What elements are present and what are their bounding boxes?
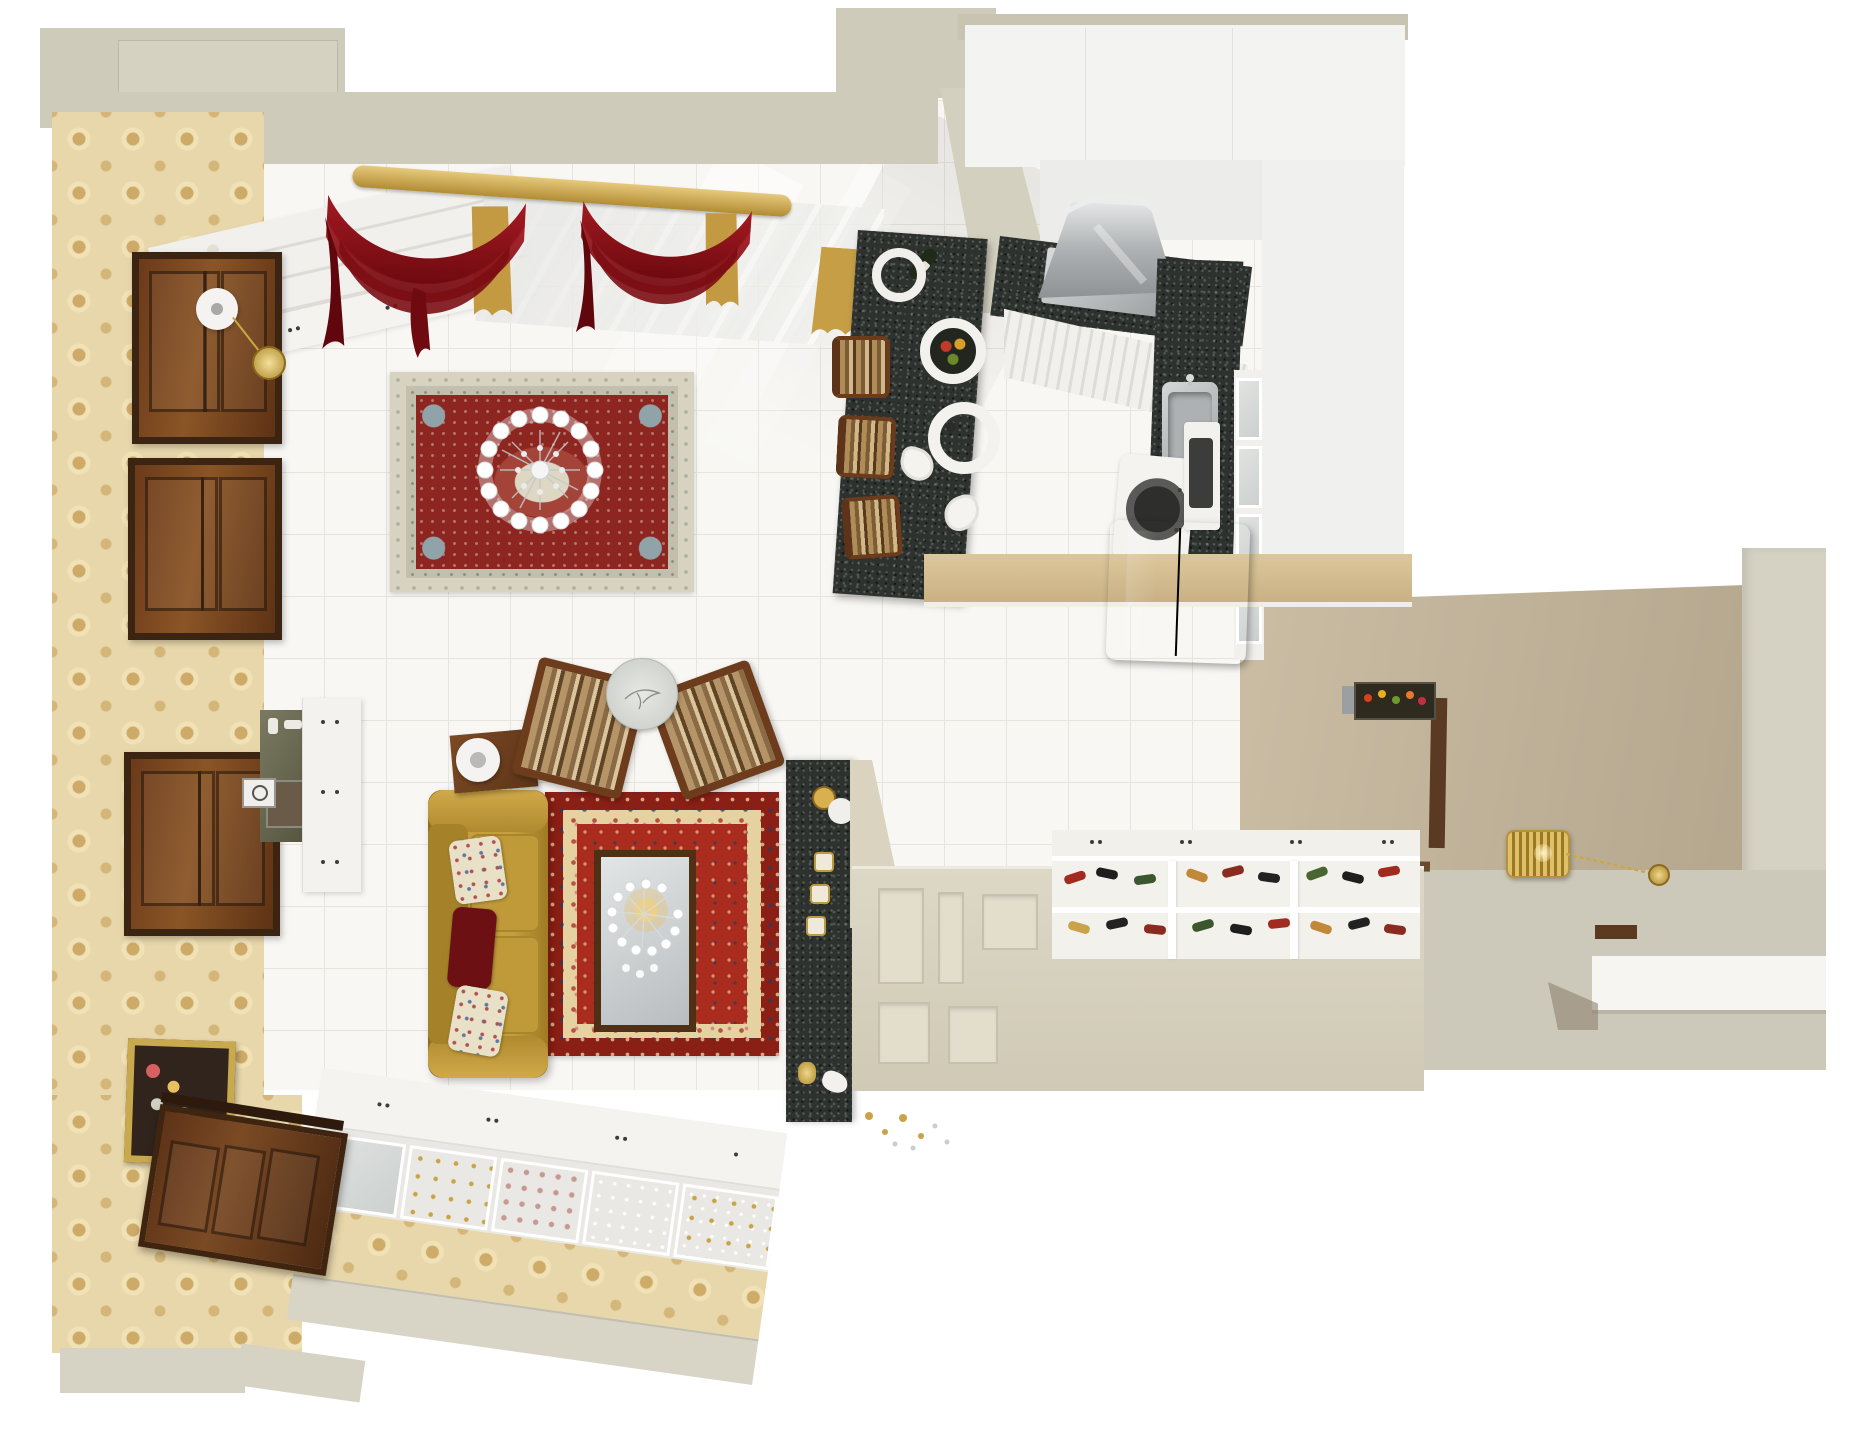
panel-inset — [201, 477, 218, 611]
bar-stool — [835, 415, 896, 480]
panel-inset — [198, 771, 215, 906]
small-clock-face — [252, 785, 268, 801]
sideboard-handle-dot — [335, 790, 339, 794]
microwave-window — [1189, 438, 1213, 508]
shoe — [1185, 868, 1209, 884]
crystal-chandelier — [452, 382, 628, 558]
painting-flower — [146, 1064, 160, 1078]
wall-outer-edge-bottom2 — [236, 1344, 366, 1403]
shoe-cabinet-handle-dot — [1188, 840, 1192, 844]
round-glass-table — [606, 658, 678, 730]
sideboard-handle-dot — [321, 790, 325, 794]
wall-outer-edge-bottom — [60, 1348, 245, 1393]
shoe — [1383, 924, 1406, 936]
shoe-cabinet-handle-dot — [1098, 840, 1102, 844]
cabinet-handle-dot — [377, 1102, 382, 1107]
partition-panel — [938, 892, 964, 984]
kitchen-upper-cabinets — [965, 25, 1405, 167]
cabinet-handle-dot — [494, 1119, 499, 1124]
fruit-bowl — [920, 318, 986, 384]
shoe — [1133, 874, 1156, 886]
glass-door — [673, 1183, 778, 1270]
refrigerator — [1106, 520, 1251, 665]
partition-panel — [948, 1006, 998, 1064]
kitchen-cabinet-seam — [1085, 28, 1086, 164]
bar-stool — [832, 336, 890, 398]
shoe-cabinet-handle-dot — [1180, 840, 1184, 844]
partition-panel — [982, 894, 1038, 950]
cabinet-handle-dot — [615, 1135, 620, 1140]
shoe — [1377, 865, 1400, 878]
shoe — [1063, 870, 1087, 885]
shoe-cabinet-top — [1052, 830, 1420, 856]
cabinet-handle-dot — [288, 328, 293, 333]
flower-picture-frame — [1354, 682, 1436, 720]
fridge-highlight — [1124, 530, 1158, 651]
glass-pane — [1236, 446, 1262, 508]
clock-center — [211, 303, 223, 315]
shoe — [1347, 916, 1371, 930]
microwave — [1184, 422, 1220, 530]
sideboard-handle-dot — [335, 720, 339, 724]
lantern-glow — [1534, 844, 1552, 862]
etched-branch — [607, 659, 677, 729]
wall-wood-panel — [128, 458, 282, 640]
shoe — [1221, 864, 1245, 878]
console-pull — [268, 718, 278, 734]
shoe-cabinet-handle-dot — [1290, 840, 1294, 844]
gold-vase — [798, 1062, 816, 1084]
shoe — [1305, 866, 1329, 882]
pendulum-bob — [252, 346, 286, 380]
lantern-chain — [1566, 846, 1658, 880]
door-panel — [257, 1148, 321, 1247]
sideboard-handle-dot — [321, 860, 325, 864]
partition-panel — [878, 888, 924, 984]
entry-bench-shelf — [1592, 956, 1826, 1010]
white-sideboard — [302, 698, 361, 892]
cup-on-plate — [946, 422, 956, 432]
glass-door — [491, 1158, 588, 1244]
gold-candlestick — [806, 916, 826, 936]
console-pull — [284, 720, 302, 729]
sideboard-handle-dot — [321, 720, 325, 724]
panel-inset — [145, 477, 204, 611]
entry-threshold-strip — [1429, 698, 1448, 848]
south-wall-group — [287, 1068, 787, 1383]
pillow-burgundy — [447, 906, 498, 990]
cabinet-handle-dot — [385, 1103, 390, 1108]
entry-door — [138, 1104, 348, 1276]
shoe-divider-horizontal — [1052, 907, 1420, 913]
shoe — [1067, 920, 1091, 935]
shoe — [1095, 867, 1118, 880]
flower-frame-silver-edge — [1342, 686, 1354, 714]
lantern-ceiling-rose — [1648, 864, 1670, 886]
shoe — [1341, 870, 1365, 884]
pendant-lantern — [1506, 830, 1570, 878]
shoe-cabinet-handle-dot — [1298, 840, 1302, 844]
small-clock — [242, 778, 276, 808]
flower-dot — [1418, 697, 1426, 705]
flower-dot — [1406, 691, 1414, 699]
flower-dot — [1364, 694, 1372, 702]
partition-panel — [878, 1002, 930, 1064]
shoe — [1229, 923, 1252, 936]
cabinet-handle-dot — [734, 1152, 739, 1157]
door-panel — [157, 1140, 220, 1233]
shoe — [1309, 920, 1333, 935]
apartment-render — [0, 0, 1864, 1440]
crystal-chandelier-small — [596, 852, 692, 1002]
glass-door — [400, 1145, 497, 1231]
glass-pane — [1236, 378, 1262, 440]
painting-flower — [167, 1081, 179, 1093]
cabinet-handle-dot — [623, 1137, 628, 1142]
bar-stool — [841, 494, 903, 560]
shoe-cabinet-handle-dot — [1390, 840, 1394, 844]
flower-dot — [1392, 696, 1400, 704]
shoe-cabinet-handle-dot — [1382, 840, 1386, 844]
kitchen-cabinet-seam — [1232, 28, 1233, 164]
plate-ring — [872, 248, 926, 302]
lamp-center — [470, 752, 486, 768]
curtain-swag-left — [314, 187, 533, 368]
shoe — [1144, 924, 1167, 935]
cabinet-handle-dot — [296, 326, 301, 331]
entry-wood-trim — [1595, 925, 1637, 939]
shoe — [1257, 872, 1280, 884]
gold-candlestick — [810, 884, 830, 904]
shoe — [1268, 918, 1291, 929]
plate-ring-large — [928, 402, 1000, 474]
shoe — [1191, 918, 1215, 933]
glass-door — [582, 1171, 679, 1257]
shoe-cabinet — [1052, 856, 1420, 959]
crystalware-sparkle — [855, 1098, 965, 1158]
shoe — [1105, 917, 1128, 930]
sofa — [428, 790, 548, 1078]
sideboard-handle-dot — [335, 860, 339, 864]
panel-inset — [219, 477, 267, 611]
fridge-seam — [1174, 528, 1180, 656]
curtain-swag-right — [563, 194, 763, 352]
pillow-floral — [448, 835, 508, 906]
entry-right-outer-wall — [1742, 548, 1826, 908]
faucet — [1186, 374, 1194, 382]
table-lamp — [456, 738, 500, 782]
panel-inset — [149, 271, 207, 412]
panel-inset — [141, 771, 201, 906]
gold-candlestick — [814, 852, 834, 872]
flower-dot — [1378, 690, 1386, 698]
cabinet-handle-dot — [486, 1117, 491, 1122]
shoe-cabinet-handle-dot — [1090, 840, 1094, 844]
wall-clock — [196, 288, 238, 330]
